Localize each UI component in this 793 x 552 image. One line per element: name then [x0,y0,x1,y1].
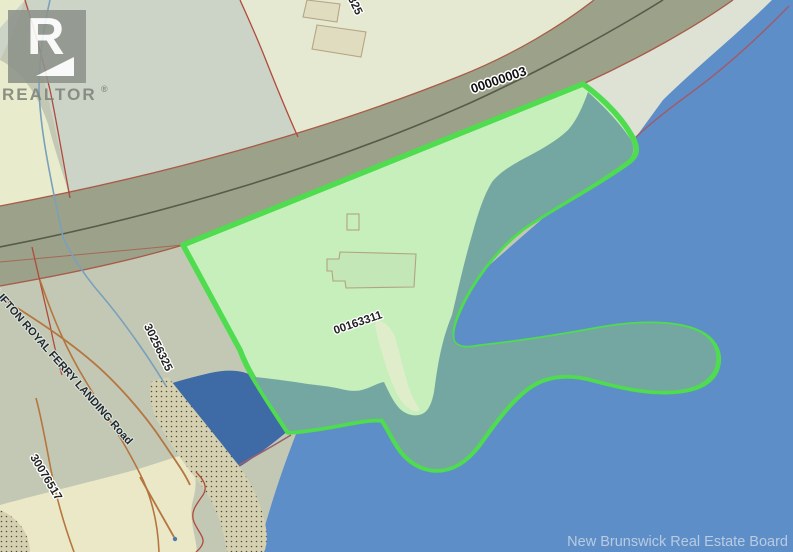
stream-mouth-dot [173,537,177,541]
registered-mark: ® [101,84,108,94]
realtor-logo-wordmark: REALTOR ® [2,84,108,104]
map-viewport: 00000003 00163311 30256325 30076517 325 … [0,0,793,552]
realtor-logo-letter: R [27,8,65,66]
map-canvas[interactable]: 00000003 00163311 30256325 30076517 325 … [0,0,793,552]
realtor-logo-word: REALTOR [2,85,97,104]
board-watermark: New Brunswick Real Estate Board [567,534,788,550]
